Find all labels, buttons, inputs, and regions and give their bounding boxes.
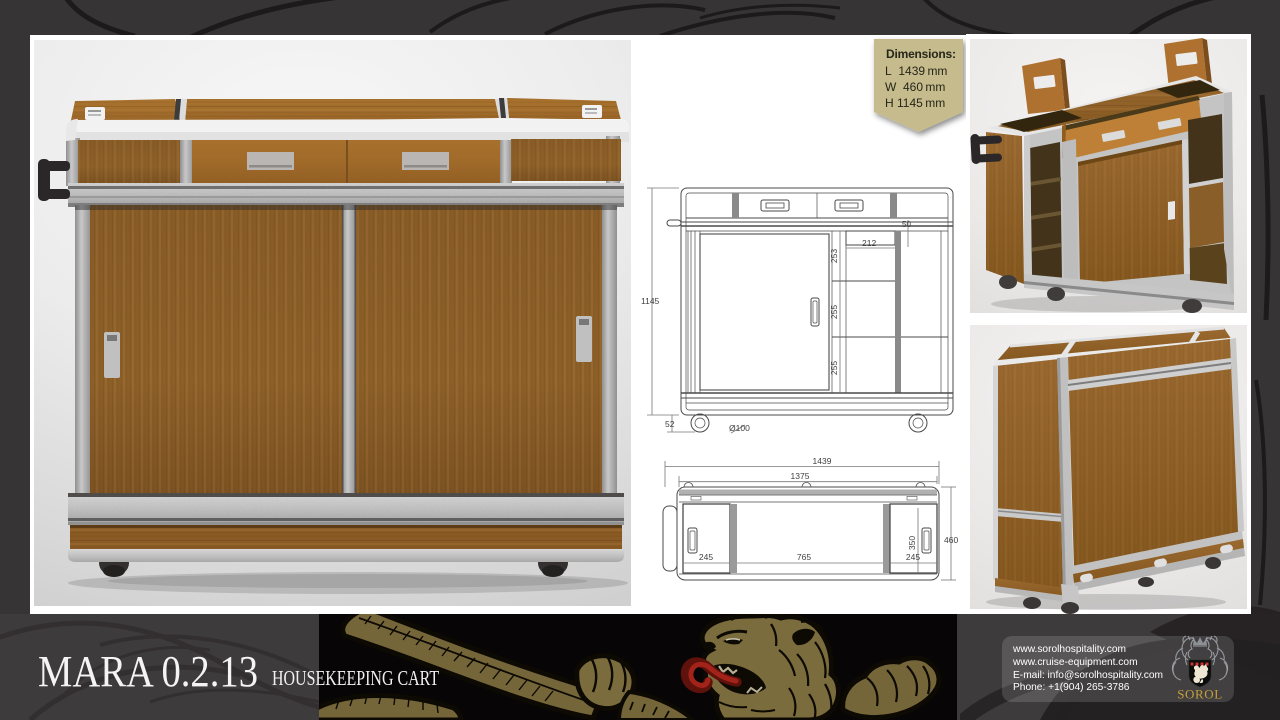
svg-text:Ø100: Ø100	[729, 423, 750, 433]
svg-text:212: 212	[862, 238, 876, 248]
svg-text:1375: 1375	[791, 471, 810, 481]
svg-text:253: 253	[829, 249, 839, 263]
svg-text:350: 350	[907, 536, 917, 550]
svg-text:765: 765	[797, 552, 811, 562]
svg-text:1439: 1439	[813, 456, 832, 466]
svg-text:L 1439 mm: L 1439 mm	[885, 64, 947, 78]
svg-text:SOROL: SOROL	[1177, 687, 1223, 702]
svg-text:245: 245	[906, 552, 920, 562]
svg-text:255: 255	[829, 361, 839, 375]
svg-text:460: 460	[944, 535, 958, 545]
svg-text:52: 52	[665, 419, 675, 429]
svg-text:W 460 mm: W 460 mm	[885, 80, 945, 94]
svg-text:H 1145 mm: H 1145 mm	[885, 96, 945, 110]
svg-text:255: 255	[829, 305, 839, 319]
svg-text:1145: 1145	[641, 296, 660, 306]
svg-text:Dimensions:: Dimensions:	[886, 47, 956, 61]
svg-text:50: 50	[902, 220, 911, 229]
svg-text:245: 245	[699, 552, 713, 562]
